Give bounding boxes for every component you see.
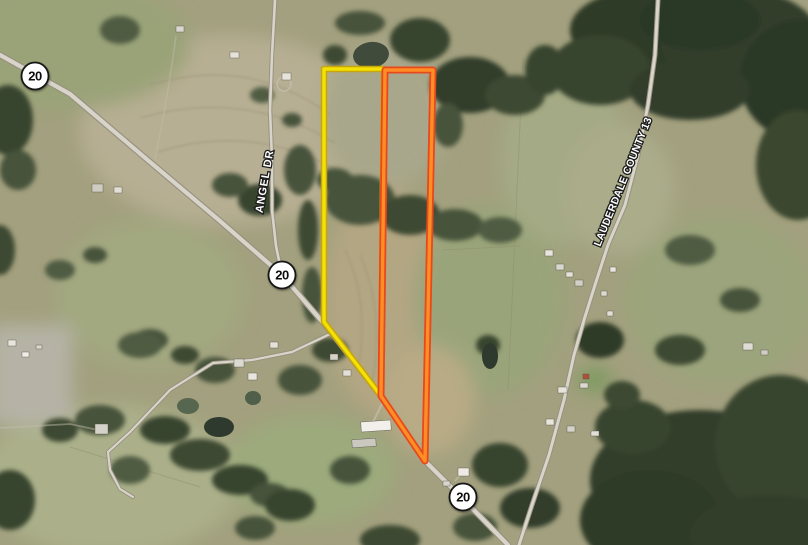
pond (482, 343, 498, 369)
pond (204, 417, 234, 437)
route-shield-20-northwest: 20 (22, 63, 49, 90)
shield-route-number: 20 (456, 490, 470, 505)
route-shield-20-south: 20 (450, 484, 477, 511)
pond (177, 398, 199, 414)
aerial-map[interactable]: ANGEL DR LAUDERDALE COUNTY 13 20 20 20 (0, 0, 808, 545)
shield-route-number: 20 (275, 268, 289, 283)
pond (245, 391, 261, 405)
shield-route-number: 20 (28, 69, 42, 84)
route-shield-20-center: 20 (269, 262, 296, 289)
